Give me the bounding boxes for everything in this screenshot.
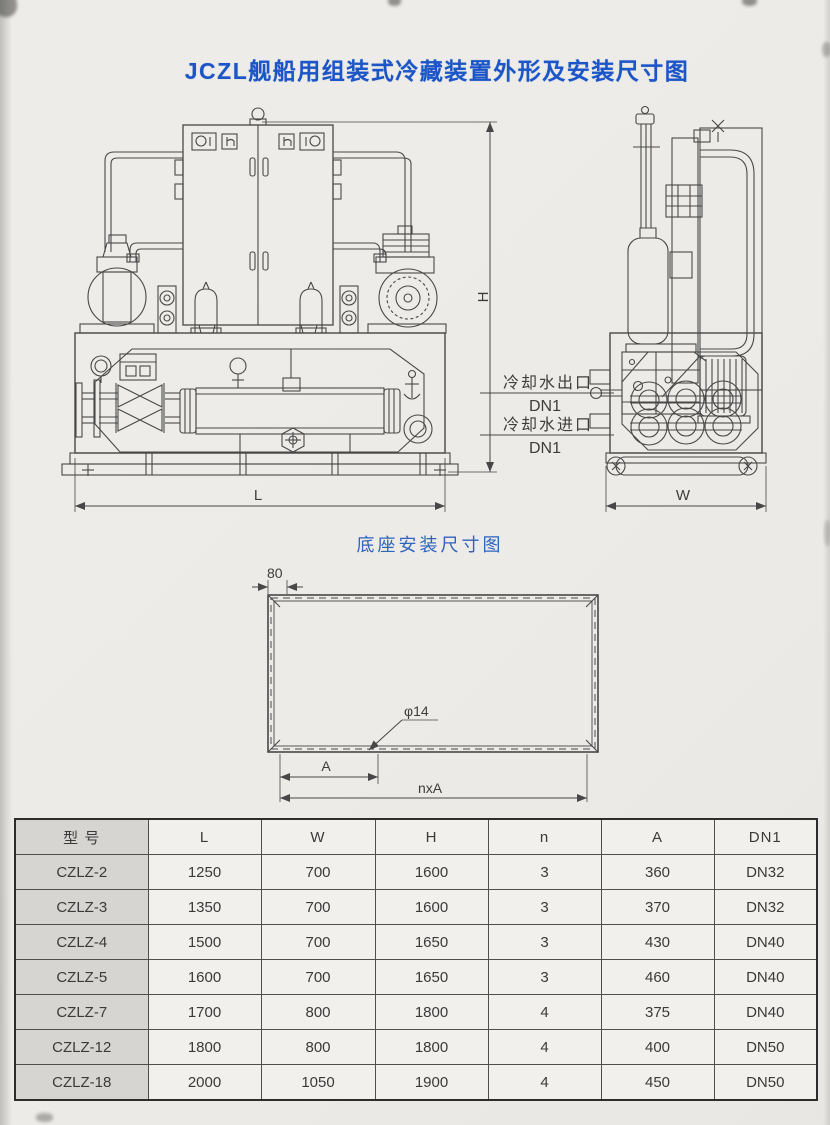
cell-l: 1800 [148,1030,261,1065]
table-row: CZLZ-4 1500 700 1650 3 430 DN40 [15,925,817,960]
side-view [590,107,766,476]
cell-n: 3 [488,925,601,960]
cell-l: 1250 [148,855,261,890]
cell-a: 370 [601,890,714,925]
header-h: H [375,819,488,855]
cell-n: 3 [488,960,601,995]
cell-model: CZLZ-3 [15,890,148,925]
cell-w: 700 [261,890,375,925]
table-row: CZLZ-12 1800 800 1800 4 400 DN50 [15,1030,817,1065]
base-plate-dimensions [252,580,587,802]
front-view [62,333,458,476]
cell-h: 1900 [375,1065,488,1101]
table-header-row: 型 号 L W H n A DN1 [15,819,817,855]
cooling-water-outlet-dn: DN1 [529,398,561,415]
header-dn1: DN1 [714,819,817,855]
table-row: CZLZ-5 1600 700 1650 3 460 DN40 [15,960,817,995]
spec-table: 型 号 L W H n A DN1 CZLZ-2 1250 700 1600 3… [14,818,818,1101]
cell-model: CZLZ-7 [15,995,148,1030]
dim-nxa-label: nxA [418,780,443,796]
scan-artifact [36,1113,53,1122]
cell-a: 450 [601,1065,714,1101]
base-drawing-title: 底座安装尺寸图 [30,531,830,557]
dim-l-label: L [254,487,262,504]
table-row: CZLZ-2 1250 700 1600 3 360 DN32 [15,855,817,890]
cooling-water-outlet-label: 冷却水出口 [503,374,593,392]
table-row: CZLZ-18 2000 1050 1900 4 450 DN50 [15,1065,817,1101]
cell-n: 3 [488,890,601,925]
dim-a-label: A [321,758,331,774]
dim-h-label: H [475,292,492,303]
cell-a: 375 [601,995,714,1030]
dim-edge-label: 80 [267,565,283,581]
cell-h: 1800 [375,995,488,1030]
cell-w: 800 [261,995,375,1030]
cell-dn1: DN50 [714,1030,817,1065]
table-row: CZLZ-7 1700 800 1800 4 375 DN40 [15,995,817,1030]
control-cabinet [175,108,341,333]
cell-model: CZLZ-4 [15,925,148,960]
cell-w: 700 [261,960,375,995]
header-n: n [488,819,601,855]
base-plate-labels: 80 φ14 A nxA [267,565,443,796]
cell-h: 1800 [375,1030,488,1065]
cell-n: 4 [488,1065,601,1101]
cell-h: 1600 [375,855,488,890]
cell-w: 700 [261,855,375,890]
header-l: L [148,819,261,855]
cell-l: 1600 [148,960,261,995]
cell-dn1: DN40 [714,995,817,1030]
cooling-water-inlet-label: 冷却水进口 [503,416,593,434]
compressor-left [80,152,183,333]
header-a: A [601,819,714,855]
cell-n: 4 [488,1030,601,1065]
dim-hole-label: φ14 [404,703,429,719]
cell-n: 3 [488,855,601,890]
cell-l: 2000 [148,1065,261,1101]
compressor-right [333,152,446,333]
cell-model: CZLZ-5 [15,960,148,995]
header-w: W [261,819,375,855]
cell-n: 4 [488,995,601,1030]
cell-h: 1650 [375,925,488,960]
cell-model: CZLZ-12 [15,1030,148,1065]
cell-dn1: DN32 [714,890,817,925]
cell-w: 700 [261,925,375,960]
cell-h: 1600 [375,890,488,925]
document-page: JCZL舰船用组装式冷藏装置外形及安装尺寸图 [0,0,830,1125]
header-model: 型 号 [15,819,148,855]
cell-h: 1650 [375,960,488,995]
dim-w-label: W [676,487,691,504]
cell-l: 1500 [148,925,261,960]
cell-dn1: DN50 [714,1065,817,1101]
cell-a: 460 [601,960,714,995]
cell-l: 1700 [148,995,261,1030]
cell-l: 1350 [148,890,261,925]
cooling-water-inlet-dn: DN1 [529,440,561,457]
technical-drawing: H L W 冷却水出口 DN1 冷却水进口 DN1 [0,0,830,812]
cell-dn1: DN40 [714,925,817,960]
base-plate-drawing [268,595,598,752]
cell-a: 430 [601,925,714,960]
table-row: CZLZ-3 1350 700 1600 3 370 DN32 [15,890,817,925]
cell-model: CZLZ-2 [15,855,148,890]
cell-dn1: DN40 [714,960,817,995]
cell-w: 800 [261,1030,375,1065]
cell-w: 1050 [261,1065,375,1101]
cell-dn1: DN32 [714,855,817,890]
cell-a: 360 [601,855,714,890]
cell-model: CZLZ-18 [15,1065,148,1101]
cell-a: 400 [601,1030,714,1065]
